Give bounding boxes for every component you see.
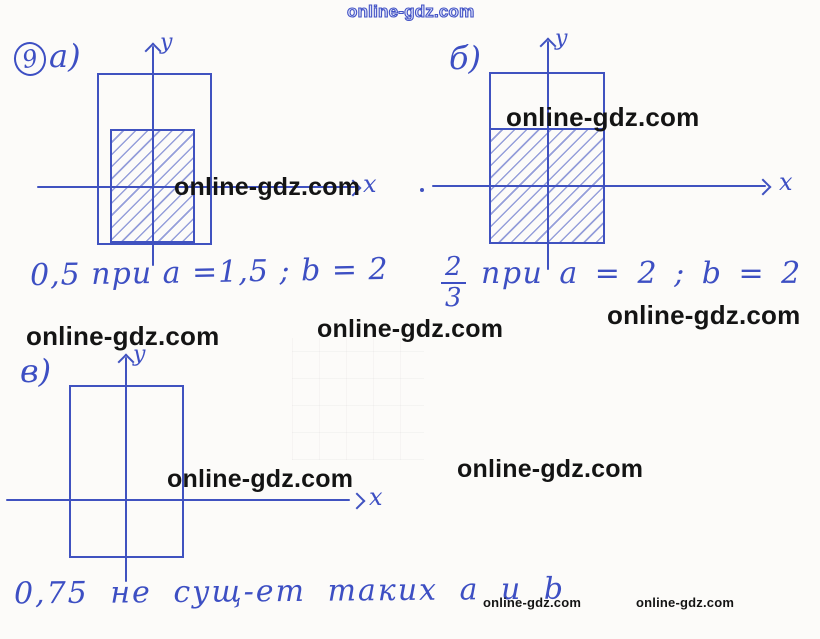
handwritten-solution-page: 9 а) y x 0,5 при a =1,5 ; b = 2 б) y x 2…: [0, 0, 820, 639]
ink-dot: [420, 188, 424, 192]
y-axis-label-a: y: [160, 31, 172, 54]
watermark-top-outline: online-gdz.com: [347, 2, 474, 22]
watermark-mid-right: online-gdz.com: [607, 300, 800, 331]
y-axis-arrow-icon-b: [540, 38, 557, 55]
paper-grid-artifact: [292, 338, 424, 460]
part-label-a: а): [49, 40, 81, 74]
x-axis-label-b: x: [779, 170, 793, 195]
watermark-bottom-small-1: online-gdz.com: [483, 595, 581, 610]
watermark-panel-b: online-gdz.com: [506, 102, 699, 133]
fraction-numerator: 2: [441, 254, 466, 284]
watermark-panel-v: online-gdz.com: [167, 465, 353, 494]
y-axis-arrow-icon-v: [118, 354, 135, 371]
part-label-b: б): [449, 42, 481, 76]
x-axis-v: [6, 499, 350, 501]
y-axis-b: [547, 41, 549, 270]
caption-a: 0,5 при a =1,5 ; b = 2: [30, 254, 389, 292]
watermark-mid-center: online-gdz.com: [317, 315, 503, 344]
x-axis-arrow-icon-v: [349, 493, 366, 510]
caption-fraction-b: 2 3: [441, 254, 466, 313]
x-axis-label-v: x: [369, 485, 383, 510]
y-axis-label-b: y: [555, 27, 567, 50]
watermark-right-center: online-gdz.com: [457, 455, 643, 484]
part-label-v: в): [20, 355, 51, 389]
watermark-mid-left: online-gdz.com: [26, 321, 219, 352]
watermark-bottom-small-2: online-gdz.com: [636, 595, 734, 610]
x-axis-label-a: x: [363, 172, 377, 197]
fraction-denominator: 3: [441, 284, 466, 312]
watermark-panel-a: online-gdz.com: [174, 173, 360, 202]
problem-number-badge: 9: [11, 39, 48, 78]
y-axis-a: [152, 46, 154, 266]
x-axis-arrow-icon-b: [755, 179, 772, 196]
x-axis-b: [432, 185, 766, 187]
caption-b: при a = 2 ; b = 2: [481, 258, 802, 290]
y-axis-arrow-icon-a: [145, 43, 162, 60]
y-axis-v: [125, 357, 127, 582]
